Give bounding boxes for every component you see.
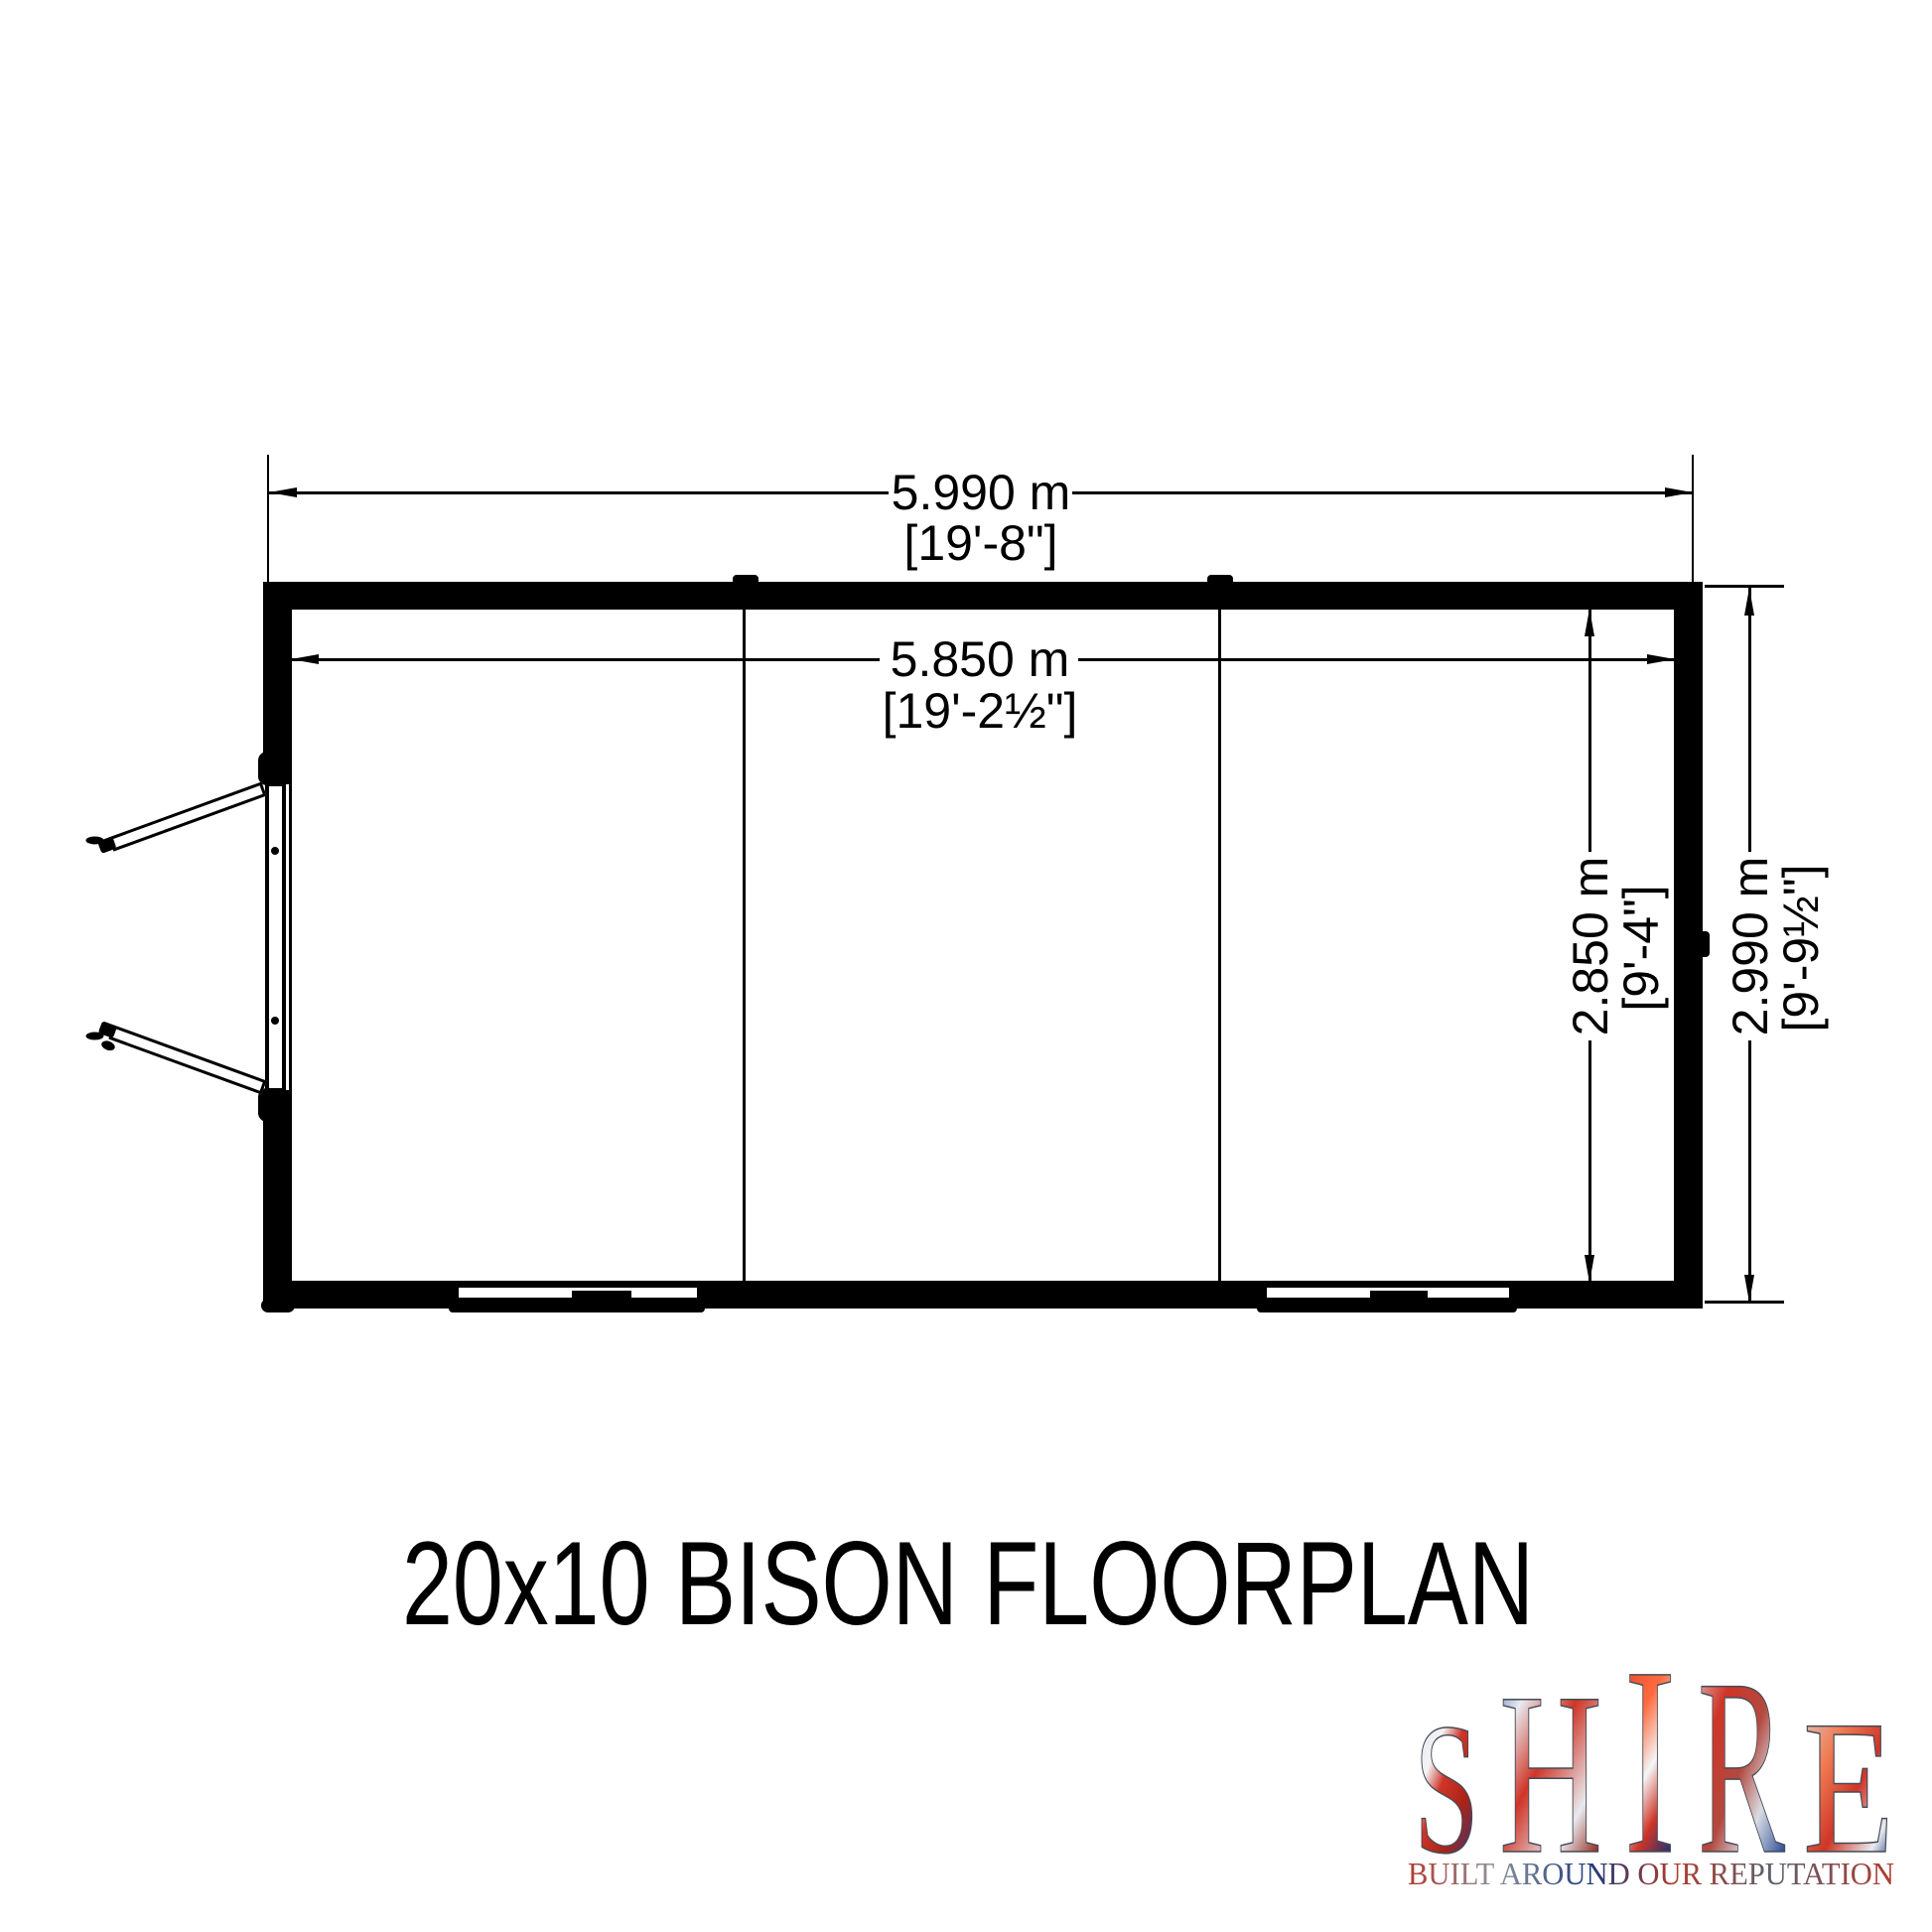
right-wall-joint-tick bbox=[1701, 931, 1710, 957]
floorplan-page: 5.990 m [19'-8"] 5.850 m [19'-2½"] 2.850… bbox=[0, 0, 1932, 1932]
door-hinge-knuckle-icon bbox=[85, 836, 103, 844]
arrowhead-down-icon bbox=[1744, 1275, 1754, 1303]
left-wall-lower-segment bbox=[263, 1090, 289, 1309]
arrowhead-right-icon bbox=[1665, 487, 1693, 497]
window-mullion bbox=[572, 1291, 631, 1298]
top-wall bbox=[263, 582, 1703, 608]
door-frame-pin-bottom bbox=[271, 1017, 279, 1025]
corner-nub bbox=[261, 1299, 295, 1312]
extension-line-left bbox=[267, 455, 269, 584]
extension-line-right bbox=[1692, 455, 1694, 584]
dim-depth-outer-metric: 2.990 m bbox=[1724, 797, 1777, 1095]
dim-width-outer-imperial: [19'-8"] bbox=[817, 516, 1145, 570]
door-frame-pin-top bbox=[271, 847, 279, 855]
logo-tagline: BUILT AROUND OUR REPUTATION bbox=[1408, 1856, 1894, 1891]
dim-depth-outer-imperial: [9'-9½"] bbox=[1774, 799, 1828, 1097]
right-wall bbox=[1677, 582, 1703, 1309]
page-title-block: 20x10 BISON FLOORPLAN bbox=[387, 1521, 1549, 1655]
panel-joint-tick-1 bbox=[733, 575, 759, 584]
arrowhead-left-icon bbox=[269, 487, 297, 497]
partition-line-2 bbox=[1218, 607, 1221, 1284]
page-title: 20x10 BISON FLOORPLAN bbox=[402, 1521, 1534, 1650]
dimension-line bbox=[1072, 491, 1693, 494]
panel-joint-tick-2 bbox=[1207, 575, 1233, 584]
door-opening-frame bbox=[265, 782, 286, 1092]
brand-logo: S H I R E BUILT AROUND OUR REPUTATION bbox=[1400, 1658, 1926, 1906]
door-hinge-knuckle-icon bbox=[100, 1039, 116, 1052]
door-hinge-knuckle-icon bbox=[85, 1033, 103, 1040]
door-leaf-top bbox=[108, 781, 266, 851]
partition-line-1 bbox=[743, 607, 746, 1284]
window-mullion bbox=[1370, 1291, 1428, 1298]
interior-face-outline bbox=[289, 607, 1677, 1284]
door-leaf-bottom bbox=[108, 1025, 266, 1094]
arrowhead-up-icon bbox=[1744, 588, 1754, 616]
dim-width-outer-metric: 5.990 m bbox=[817, 466, 1145, 519]
door-hinge-top bbox=[258, 752, 276, 785]
dimension-line bbox=[269, 491, 889, 494]
